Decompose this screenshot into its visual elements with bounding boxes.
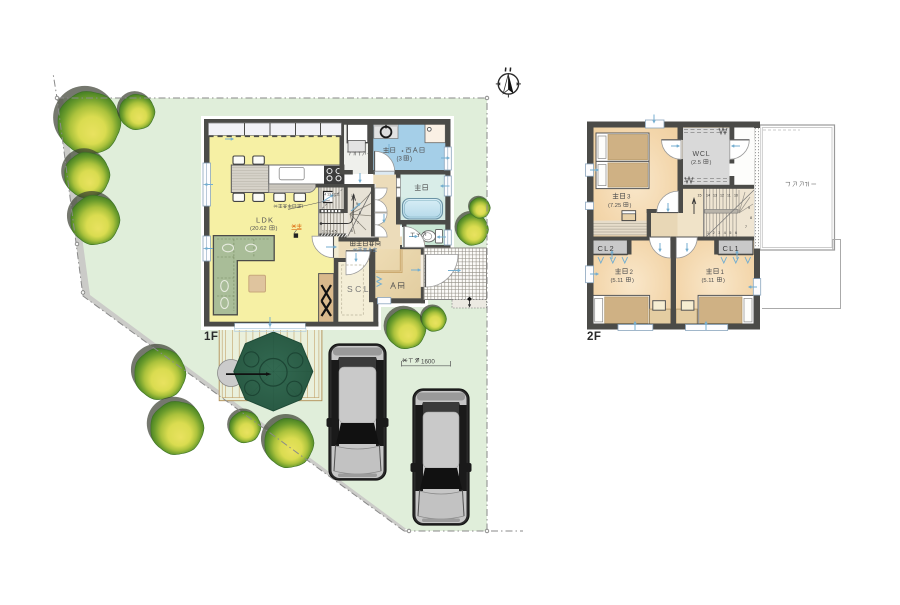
svg-text:): ) <box>723 278 725 284</box>
svg-text:7: 7 <box>745 225 747 229</box>
svg-text:LDK: LDK <box>256 216 274 225</box>
svg-text:9: 9 <box>748 206 750 210</box>
svg-text:14: 14 <box>706 194 710 198</box>
svg-text:10: 10 <box>351 194 355 198</box>
svg-text:8: 8 <box>359 211 361 215</box>
svg-text:SCL: SCL <box>347 284 371 294</box>
svg-text:6: 6 <box>735 231 737 235</box>
svg-text:1600: 1600 <box>421 359 435 366</box>
svg-text:3: 3 <box>627 194 631 201</box>
svg-text:2: 2 <box>325 229 327 233</box>
svg-text:5: 5 <box>335 229 337 233</box>
svg-text:11: 11 <box>727 194 731 198</box>
svg-text:1: 1 <box>322 229 324 233</box>
svg-text:10: 10 <box>734 194 738 198</box>
svg-text:(20.62: (20.62 <box>250 226 267 232</box>
svg-text:15: 15 <box>698 194 702 198</box>
svg-text:CL2: CL2 <box>598 244 615 253</box>
svg-text:(5.11: (5.11 <box>702 278 715 284</box>
svg-text:1F: 1F <box>204 331 218 343</box>
svg-text:3: 3 <box>718 231 720 235</box>
svg-text:(3: (3 <box>397 157 403 163</box>
svg-text:7: 7 <box>357 221 359 225</box>
svg-text:): ) <box>630 203 632 209</box>
svg-text:): ) <box>632 278 634 284</box>
svg-text:9: 9 <box>356 202 358 206</box>
svg-text:(2.5: (2.5 <box>691 160 701 166</box>
svg-text:2: 2 <box>630 269 634 276</box>
svg-text:WCL: WCL <box>693 151 711 158</box>
svg-text:14: 14 <box>323 192 327 196</box>
svg-text:8: 8 <box>750 216 752 220</box>
svg-text:): ) <box>276 226 278 232</box>
svg-text:2F: 2F <box>587 331 601 343</box>
svg-text:3: 3 <box>328 229 330 233</box>
svg-text:6: 6 <box>351 229 353 233</box>
svg-text:): ) <box>710 160 712 166</box>
svg-text:(5.11: (5.11 <box>611 278 624 284</box>
svg-text:2: 2 <box>713 231 715 235</box>
svg-text:13: 13 <box>327 192 331 196</box>
svg-text:12: 12 <box>720 194 724 198</box>
svg-text:CL1: CL1 <box>723 244 740 253</box>
svg-text:1: 1 <box>707 231 709 235</box>
svg-text:4: 4 <box>724 231 726 235</box>
svg-text:11: 11 <box>336 192 340 196</box>
svg-text:4: 4 <box>332 229 334 233</box>
svg-text:): ) <box>410 157 412 163</box>
svg-text:13: 13 <box>713 194 717 198</box>
svg-text:(7.25: (7.25 <box>608 203 621 209</box>
svg-text:12: 12 <box>332 192 336 196</box>
svg-text:1: 1 <box>721 269 725 276</box>
svg-text:5: 5 <box>729 231 731 235</box>
